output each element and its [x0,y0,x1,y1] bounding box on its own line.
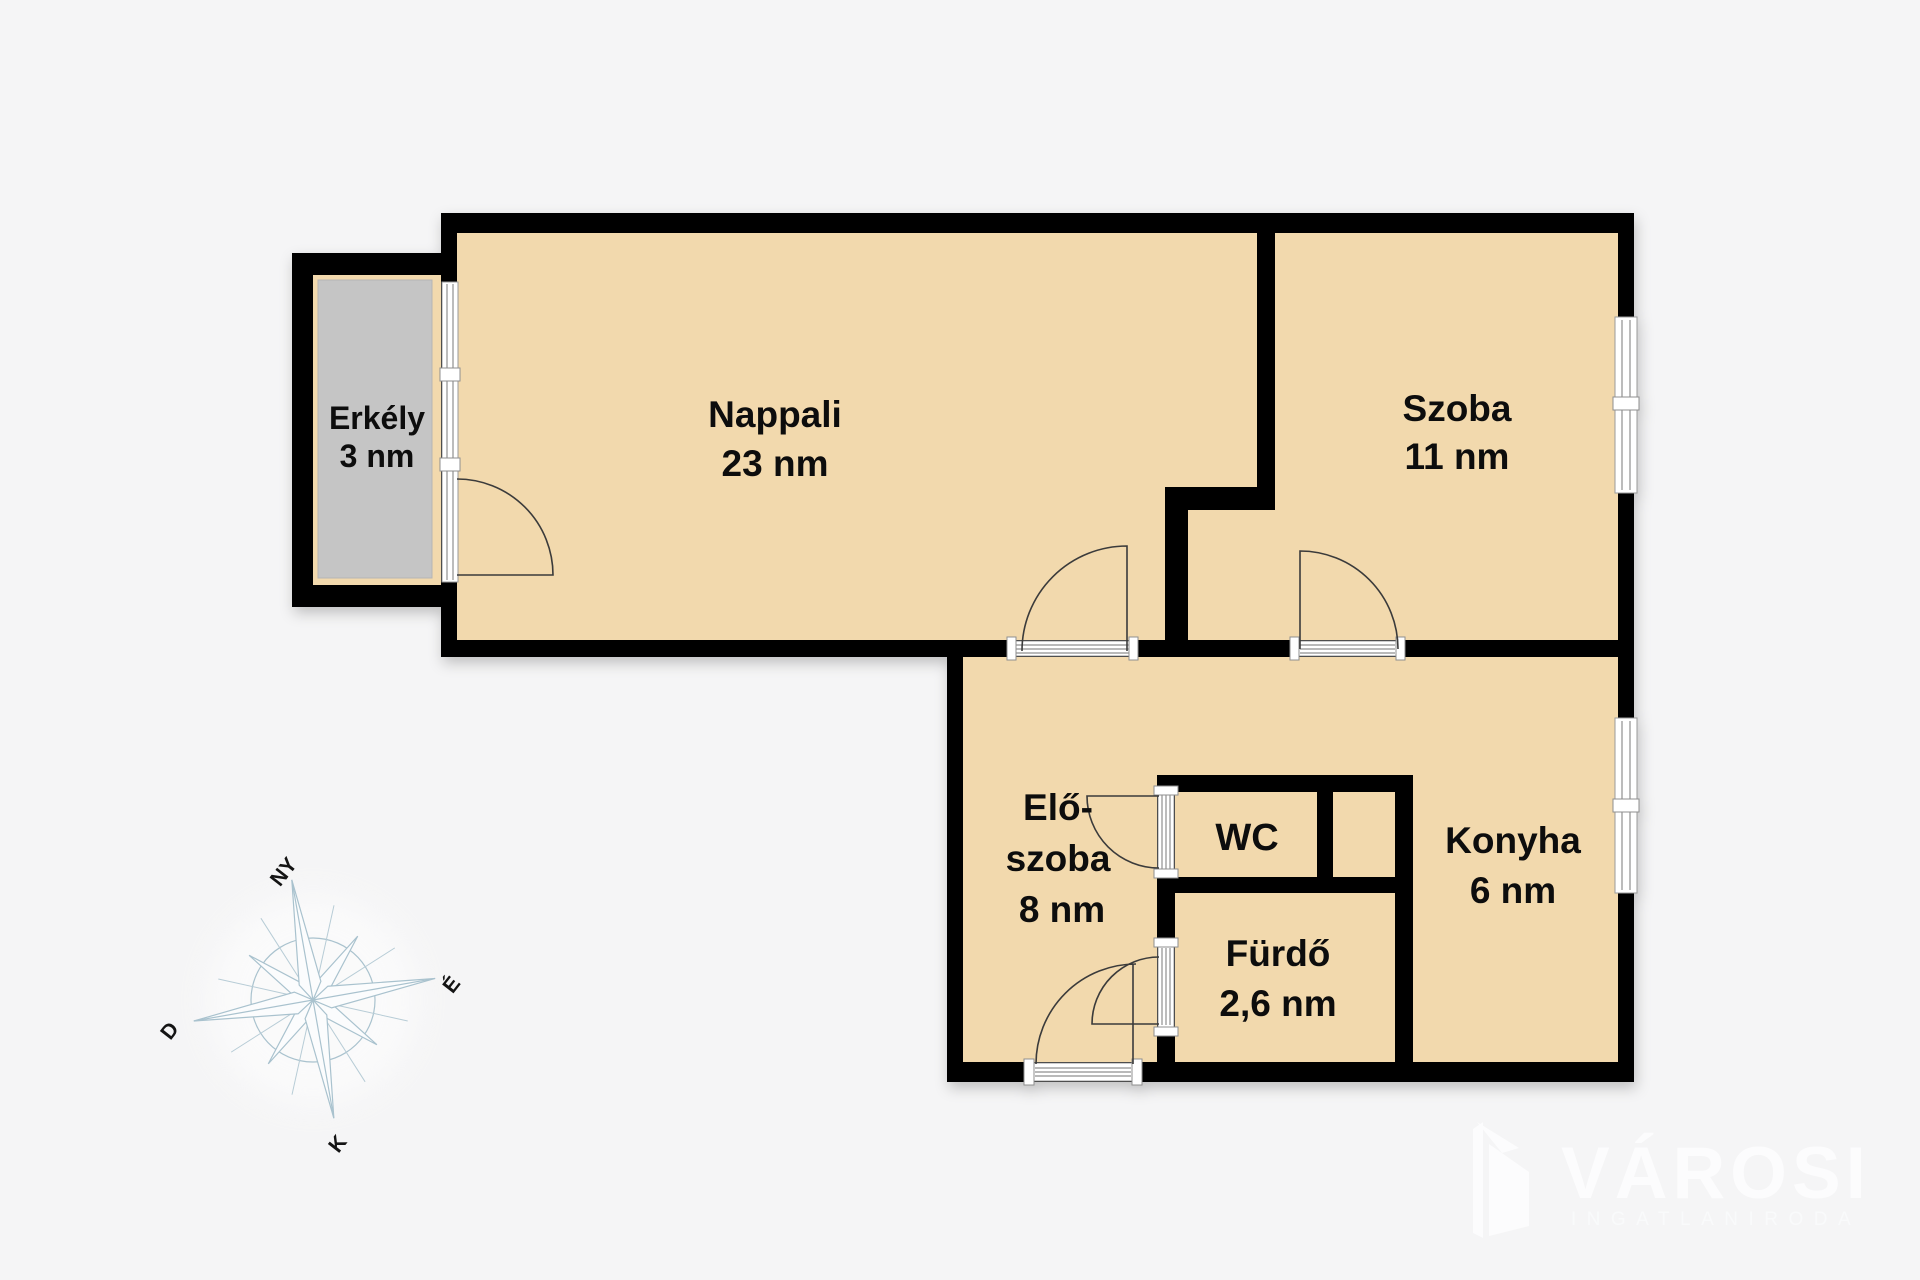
logo-subtitle: INGATLANIRODA [1571,1209,1861,1230]
wall-wc-top [1157,775,1413,792]
label-nappali: Nappali [708,394,842,435]
wall-divider-upper [1257,233,1275,487]
entrance-door-threshold [1024,1059,1142,1085]
compass: NY É D K [156,853,465,1157]
wall-divider-lower [1165,510,1188,657]
wc-door-threshold [1154,786,1178,878]
label-eloszoba-line2: szoba [1006,838,1111,879]
label-eloszoba-line1: Elő- [1023,787,1093,828]
label-wc: WC [1215,817,1278,859]
compass-label-ny: NY [266,853,302,890]
logo-title: VÁROSI [1561,1133,1871,1214]
label-szoba-area: 11 nm [1405,436,1510,477]
furdo-door-threshold [1154,938,1178,1036]
wall-balcony-bottom [292,585,443,607]
label-erkely-area: 3 nm [340,438,415,474]
wall-left-eloszoba [947,640,963,1082]
szoba-window [1613,317,1639,493]
label-konyha-area: 6 nm [1470,870,1556,911]
floorplan: Erkély 3 nm Nappali 23 nm Szoba 11 nm El… [292,213,1639,1085]
label-nappali-area: 23 nm [722,443,829,484]
label-konyha: Konyha [1445,820,1581,861]
wall-balcony-left [292,253,313,607]
compass-label-d: D [156,1018,183,1044]
logo-building-icon [1473,1122,1529,1238]
label-eloszoba-area: 8 nm [1019,889,1105,930]
balcony-glazing [440,282,460,582]
floorplan-canvas: Erkély 3 nm Nappali 23 nm Szoba 11 nm El… [0,0,1920,1280]
wall-divider-jog [1165,487,1275,510]
label-furdo-area: 2,6 nm [1219,983,1336,1024]
label-szoba: Szoba [1403,388,1512,429]
wall-wc-furdo-divider [1175,877,1395,893]
compass-label-k: K [324,1131,351,1157]
label-erkely: Erkély [329,400,425,436]
varosi-logo: VÁROSI INGATLANIRODA [1473,1122,1871,1238]
wall-wc-right-tall [1395,775,1413,1062]
wall-top [441,213,1634,233]
label-furdo: Fürdő [1226,933,1331,974]
konyha-window [1613,718,1639,893]
compass-label-e: É [439,972,466,997]
wall-balcony-top [292,253,443,275]
wall-wc-duct [1317,792,1333,877]
